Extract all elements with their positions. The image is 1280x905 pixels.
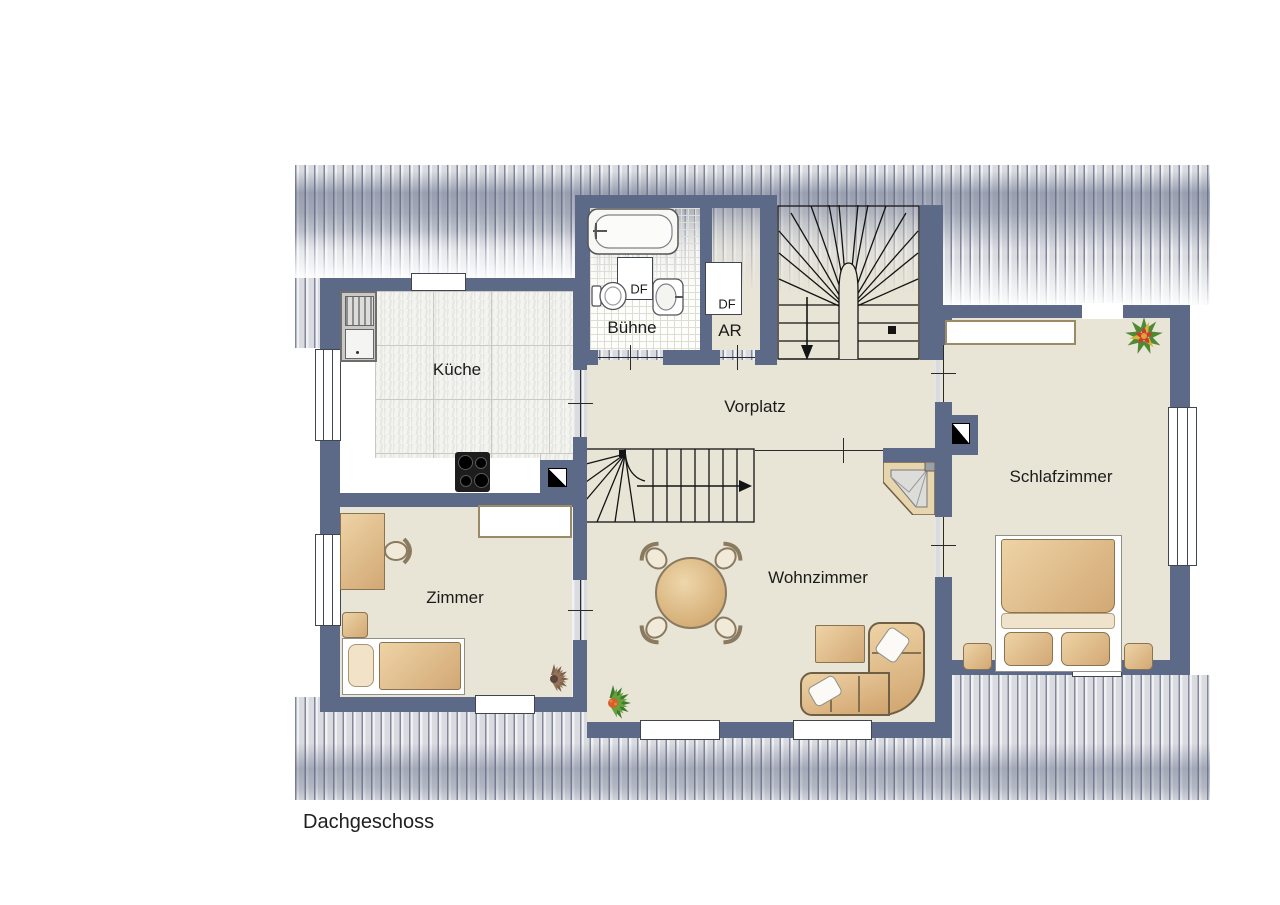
window (793, 720, 872, 740)
window (640, 720, 720, 740)
wall-segment (760, 195, 777, 360)
wall-segment (575, 350, 598, 365)
roof-window-label-ar: DF (718, 297, 735, 312)
room-label-buehne: Bühne (607, 318, 656, 338)
window (475, 695, 535, 714)
corner-fireplace (883, 462, 935, 515)
nightstand (1124, 643, 1153, 670)
plant-icon (593, 683, 633, 723)
roof-fade (295, 231, 577, 278)
room-label-schlafzimmer: Schlafzimmer (1010, 467, 1113, 487)
room-label-kueche: Küche (433, 360, 481, 380)
wall-segment (935, 577, 952, 738)
door-tick (568, 403, 593, 404)
door-tick (630, 345, 631, 370)
window (315, 349, 341, 441)
corner-sofa (800, 622, 927, 718)
bathroom-sink-icon (651, 277, 685, 317)
kitchen-sink-unit (340, 291, 377, 362)
staircase-lower (585, 448, 755, 523)
wall-segment (663, 350, 720, 365)
wall-segment (320, 697, 587, 712)
window (411, 273, 466, 291)
chimney-symbol (540, 460, 573, 493)
wall-segment (575, 195, 777, 208)
toilet-icon (591, 279, 629, 313)
roof-ridge-shadow-bottom (295, 743, 1210, 800)
desk-chair (383, 531, 417, 571)
wall-segment (573, 507, 587, 580)
wall-segment (883, 448, 935, 462)
dining-table-with-chairs (636, 538, 746, 648)
double-bed (995, 535, 1122, 672)
open-passage-line (755, 450, 883, 451)
single-bed (342, 638, 465, 695)
window (1168, 407, 1197, 566)
wall-segment (755, 350, 777, 365)
staircase-upper (777, 205, 920, 360)
bathtub-icon (587, 208, 679, 255)
door-tick (737, 345, 738, 370)
roof-window-label-buehne: DF (630, 282, 647, 297)
window (315, 534, 341, 626)
plant-icon (1123, 315, 1165, 357)
door-tick (568, 610, 593, 611)
desk (340, 513, 385, 590)
sideboard (478, 505, 572, 538)
door-tick (931, 373, 956, 374)
door-tick (843, 438, 844, 463)
room-label-wohnzimmer: Wohnzimmer (768, 568, 868, 588)
wall-segment (573, 437, 587, 507)
wall-segment (573, 640, 587, 712)
room-label-vorplatz: Vorplatz (724, 397, 785, 417)
chimney-symbol (945, 415, 978, 455)
room-label-ar: AR (718, 321, 742, 341)
nightstand (963, 643, 992, 670)
nightstand (342, 612, 368, 638)
door-tick (931, 545, 956, 546)
roof-fade (940, 257, 1210, 305)
roof-hatch-area: Küche Bühne AR Vorplatz Zimmer Wohnzimme… (295, 165, 1210, 800)
wardrobe (945, 320, 1076, 345)
plant-icon (538, 663, 570, 695)
door-opening (1082, 303, 1123, 319)
door-opening (943, 517, 944, 577)
room-label-zimmer: Zimmer (426, 588, 484, 608)
stove-icon (455, 452, 490, 492)
floor-plan-page: Küche Bühne AR Vorplatz Zimmer Wohnzimme… (0, 0, 1280, 905)
floor-title: Dachgeschoss (303, 811, 434, 834)
